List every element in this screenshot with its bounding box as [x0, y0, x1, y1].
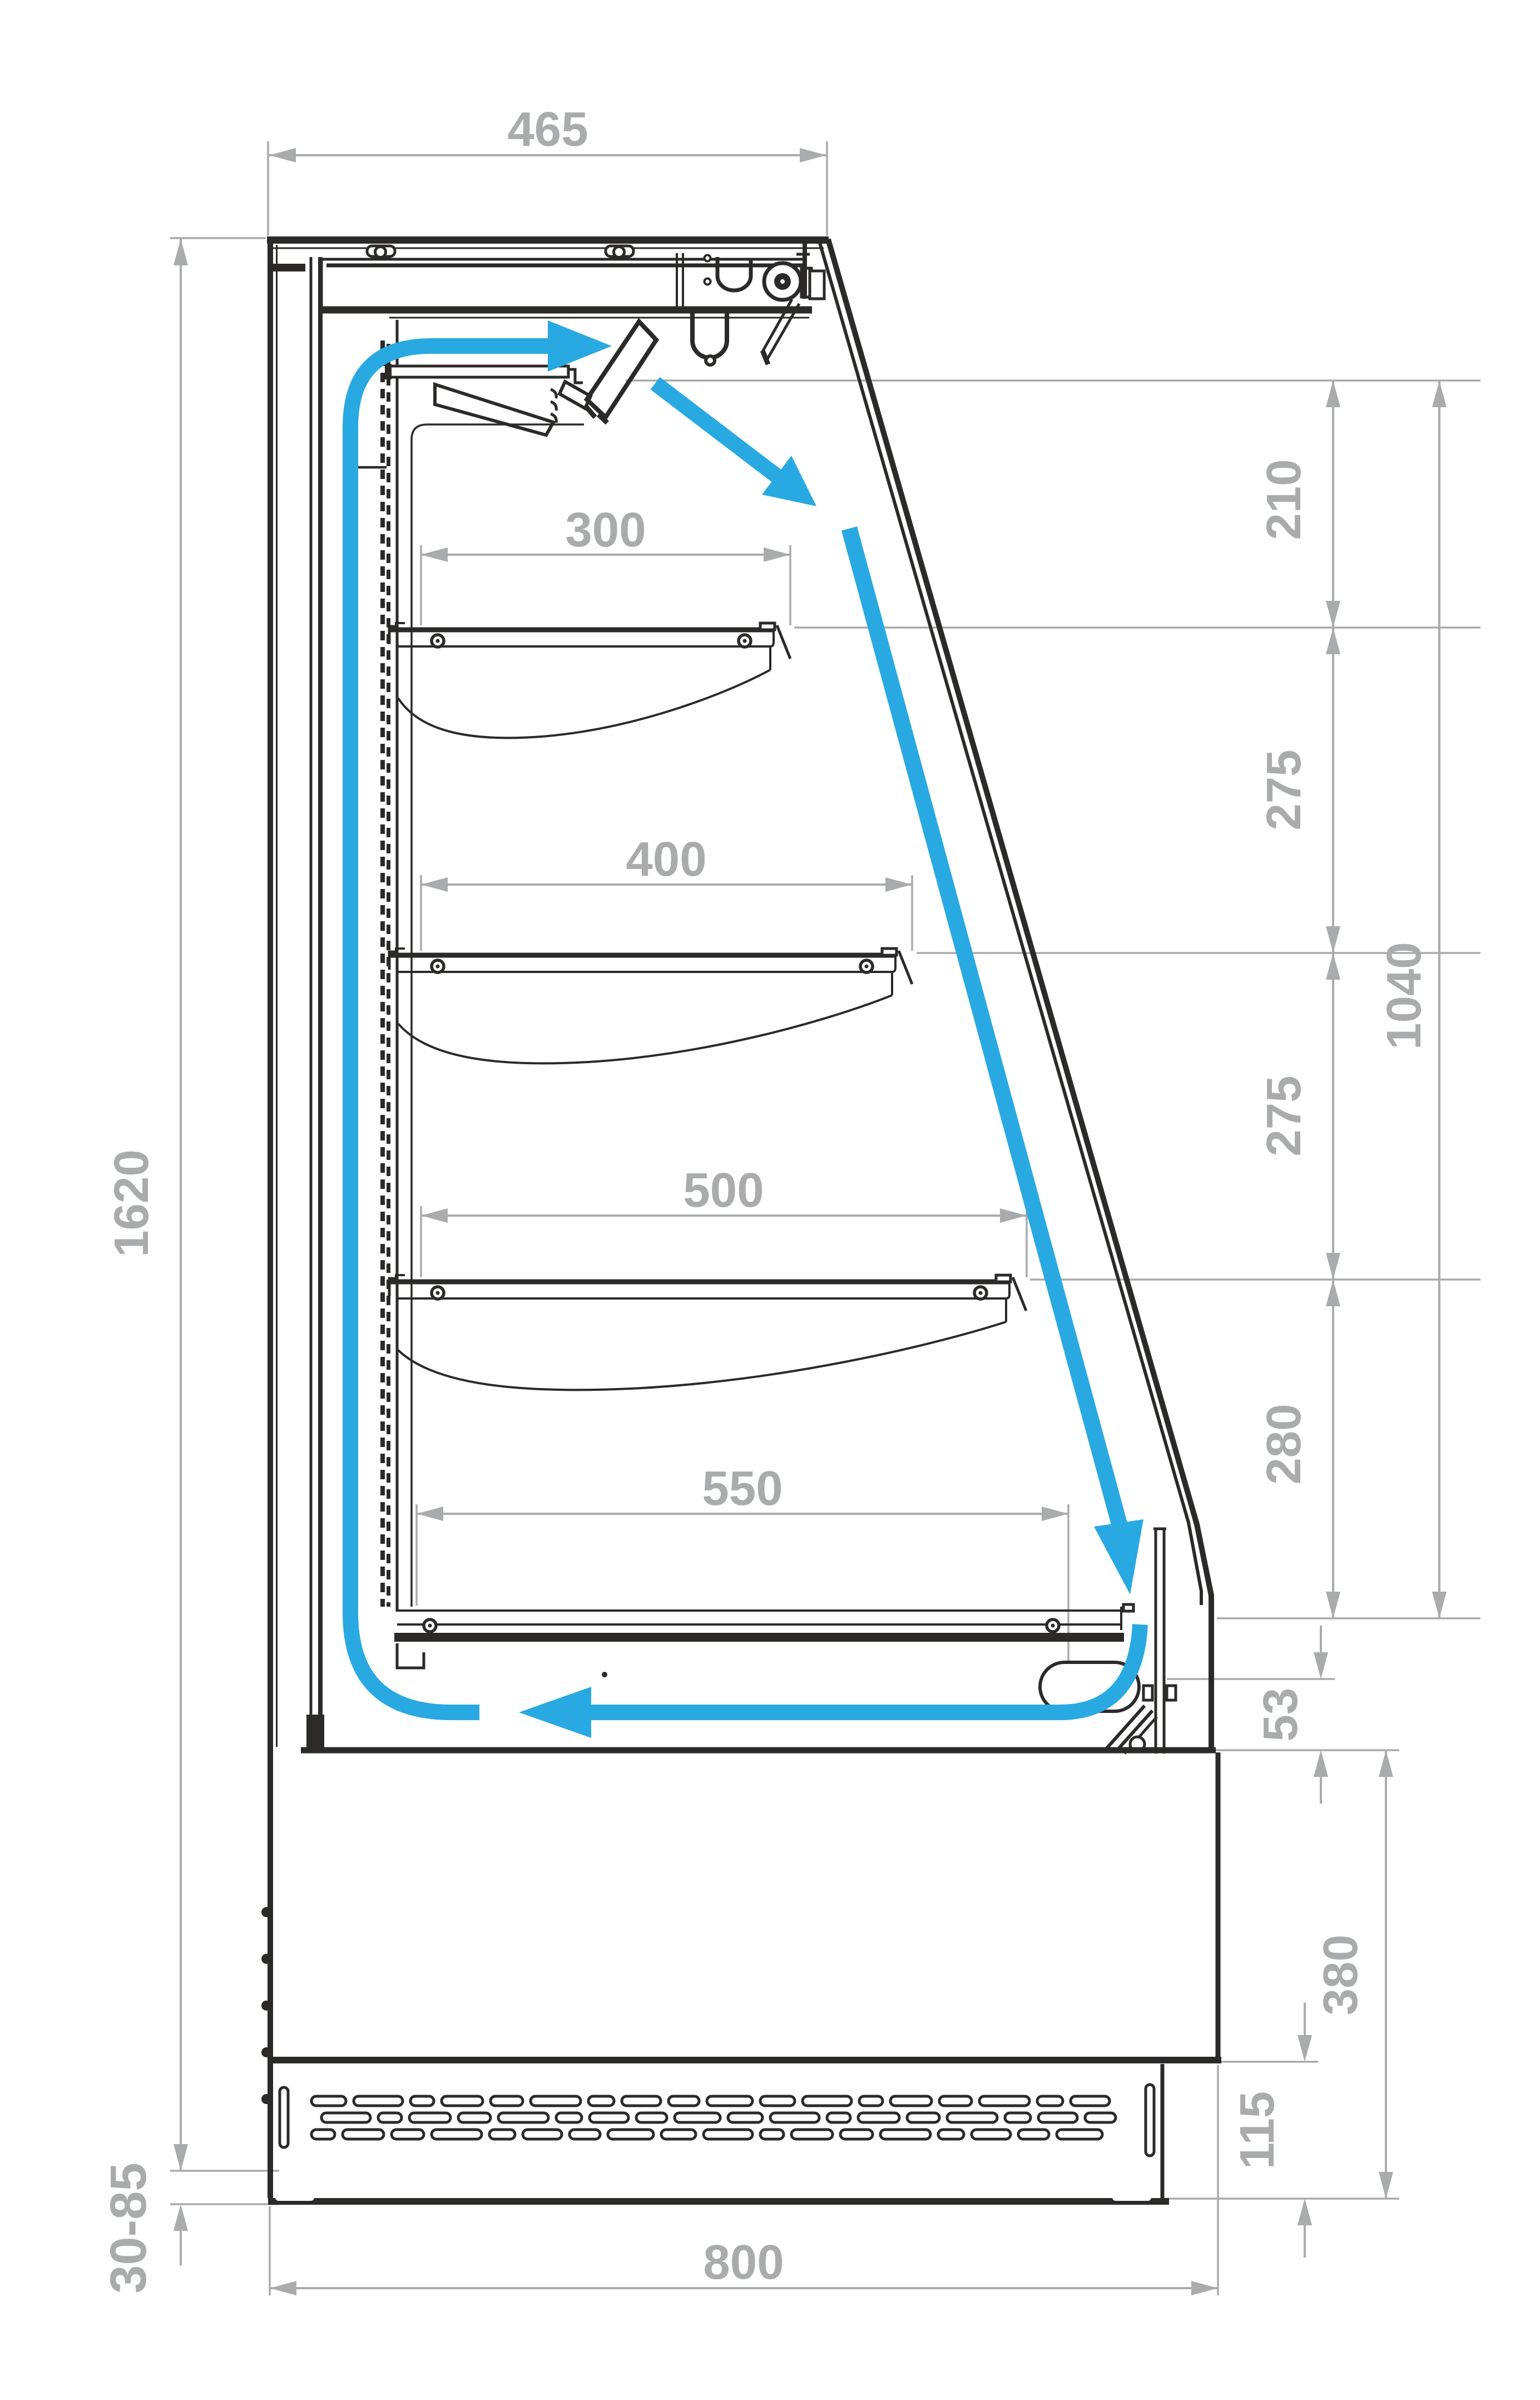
svg-text:280: 280 — [1257, 1404, 1311, 1484]
svg-text:210: 210 — [1257, 459, 1311, 540]
svg-text:275: 275 — [1257, 749, 1311, 830]
svg-text:800: 800 — [703, 2235, 784, 2289]
svg-text:300: 300 — [565, 503, 646, 557]
svg-text:275: 275 — [1257, 1075, 1311, 1156]
svg-text:550: 550 — [702, 1461, 783, 1515]
svg-text:380: 380 — [1314, 1934, 1368, 2015]
svg-text:53: 53 — [1254, 1688, 1308, 1742]
svg-text:115: 115 — [1230, 2091, 1284, 2169]
svg-text:400: 400 — [626, 832, 706, 886]
svg-text:500: 500 — [683, 1163, 764, 1217]
svg-text:1040: 1040 — [1377, 942, 1431, 1050]
svg-text:1620: 1620 — [105, 1149, 159, 1257]
svg-text:465: 465 — [507, 102, 588, 156]
svg-text:30-85: 30-85 — [100, 2162, 157, 2293]
